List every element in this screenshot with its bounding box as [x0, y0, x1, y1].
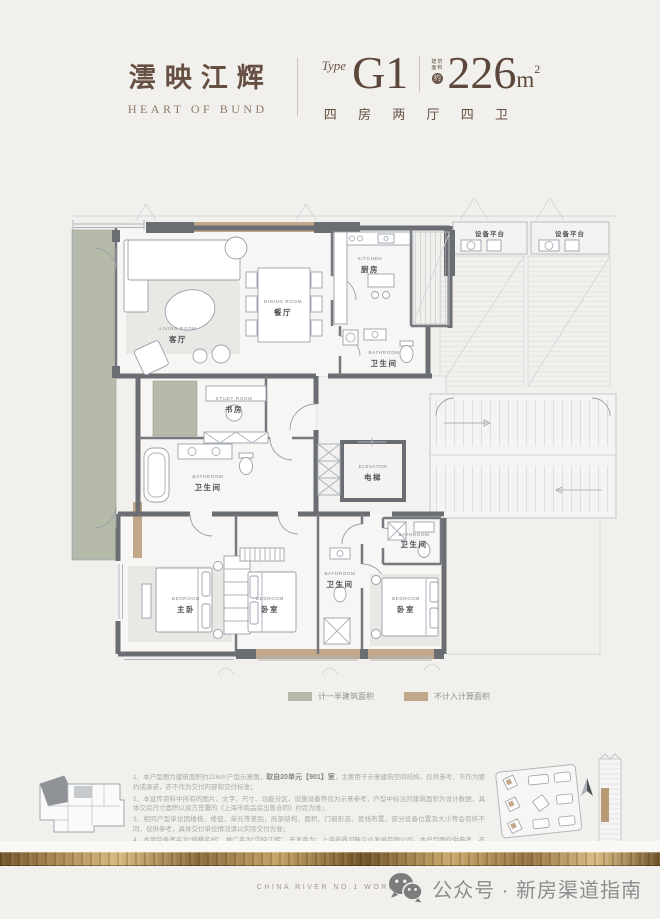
room-label-elevator-en: ELEVATOR	[359, 464, 388, 469]
area-note: 建筑 面积 约	[431, 59, 443, 84]
room-label-bed3-en: BEDROOM	[392, 596, 420, 601]
note-2: 2、本宣传资料中所有的图片、文字、尺寸、功能分区、设施设备等仅为示意参考，户型中…	[133, 795, 485, 814]
wechat-account-label: 公众号 · 新房渠道指南	[432, 874, 642, 903]
key-plan	[34, 770, 130, 842]
area-sup: 2	[534, 62, 540, 77]
room-label-bath1-cn: 卫生间	[371, 358, 398, 368]
building-elevation	[597, 752, 624, 850]
room-label-kitchen-en: KITCHEN	[358, 256, 382, 261]
room-label-bath4-en: BATHROOM	[398, 532, 429, 537]
room-label-bath3-cn: 卫生间	[327, 579, 354, 589]
type-divider	[419, 56, 420, 92]
legend: 计一半建筑面积 不计入计算面积	[288, 691, 490, 702]
approx-circle-icon: 约	[432, 73, 443, 84]
room-label-bath1-en: BATHROOM	[368, 350, 399, 355]
room-label-living-en: LIVING ROOM	[159, 326, 196, 331]
room-label-study-cn: 书房	[225, 404, 243, 414]
room-label-dining-cn: 餐厅	[273, 307, 292, 317]
gold-divider	[0, 852, 660, 866]
brand-block: 澐映江辉 HEART OF BUND	[120, 56, 273, 117]
room-label-bath2-en: BATHROOM	[192, 474, 223, 479]
type-block: Type G1 建筑 面积 约 226 m 2 四 房 两 厅 四 卫	[322, 50, 540, 123]
site-plan	[493, 760, 589, 849]
room-label-bath2-cn: 卫生间	[195, 482, 222, 492]
legend-item-half-area: 计一半建筑面积	[288, 691, 374, 702]
room-label-equip2: 设备平台	[555, 229, 585, 238]
legend-swatch-half	[288, 692, 312, 701]
room-label-study-en: STUDY ROOM	[215, 396, 252, 401]
room-label-living-cn: 客厅	[168, 334, 187, 344]
room-label-master-en: BEDROOM	[172, 596, 200, 601]
project-title-cn: 澐映江辉	[120, 56, 273, 95]
legend-swatch-excluded	[404, 692, 428, 701]
type-label: Type	[322, 58, 346, 74]
pre-divider-strip	[0, 841, 660, 852]
note-3: 3、相同户型单位因楼栋、楼层、单元等差别，局部结构、面积、门窗形态、管线布置、部…	[133, 815, 485, 834]
room-label-equip1: 设备平台	[475, 229, 505, 238]
room-label-bed2-cn: 卧室	[261, 604, 279, 614]
floorplan-canvas: LIVING ROOM 客厅 DINING ROOM 餐厅 KITCHEN 厨房…	[40, 176, 622, 702]
layout-description: 四 房 两 厅 四 卫	[322, 104, 540, 123]
room-label-bed2-en: BEDROOM	[256, 596, 284, 601]
note-1: 1、本户型图为建筑面积约226m²户型示意图，取自20单元【901】室，主要用于…	[133, 773, 485, 793]
legend-item-excluded: 不计入计算面积	[404, 691, 490, 702]
room-label-kitchen-cn: 厨房	[361, 264, 379, 274]
room-label-master-cn: 主卧	[177, 604, 195, 614]
type-value: G1	[352, 50, 408, 96]
room-label-dining-en: DINING ROOM	[264, 299, 302, 304]
room-label-elevator-cn: 电梯	[364, 472, 382, 482]
area-value: 226	[447, 50, 516, 96]
north-arrow-icon	[579, 776, 595, 798]
project-title-en: HEART OF BUND	[120, 102, 273, 117]
wechat-icon	[387, 870, 423, 906]
room-label-bath4-cn: 卫生间	[401, 539, 428, 549]
header: 澐映江辉 HEART OF BUND Type G1 建筑 面积 约 226 m…	[0, 50, 660, 123]
area-unit: m	[516, 67, 534, 93]
room-label-bed3-cn: 卧室	[397, 604, 415, 614]
wechat-badge[interactable]: 公众号 · 新房渠道指南	[387, 870, 642, 906]
header-divider	[297, 58, 298, 116]
page-root: 澐映江辉 HEART OF BUND Type G1 建筑 面积 约 226 m…	[0, 0, 660, 919]
room-label-bath3-en: BATHROOM	[324, 571, 355, 576]
